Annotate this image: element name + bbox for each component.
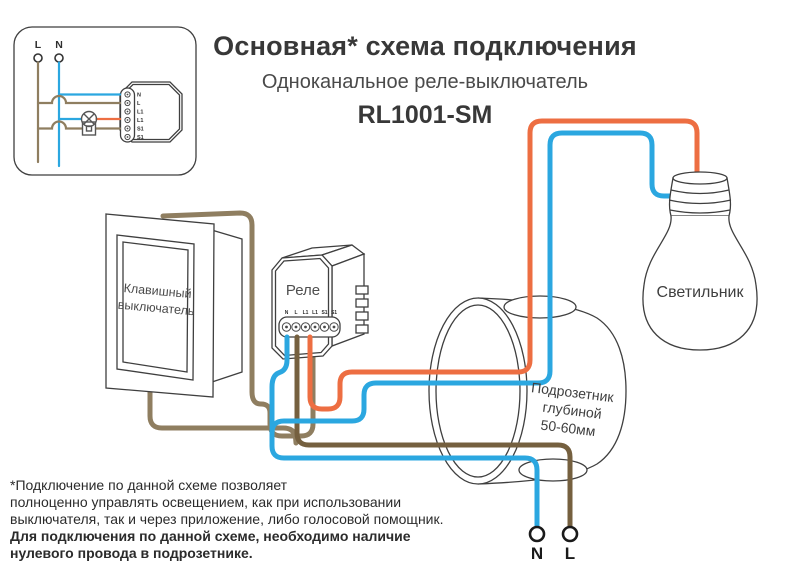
footnote-line-5: нулевого провода в подрозетнике. [10,545,444,562]
backbox-top-grommet [504,296,576,318]
mains-n-terminal [530,527,544,541]
mains-l-label: L [565,544,575,563]
mains-terminals: N L [530,527,577,563]
mains-l-terminal [563,527,577,541]
inset-term-3: L1 [137,118,143,124]
relay-fin-1 [356,286,368,294]
switch-figure: Клавишный выключатель [106,214,242,397]
relay-term-0: N [285,310,289,316]
inset-schematic: L N [14,27,196,175]
relay-front-face [272,255,332,359]
relay-fin-3 [356,312,368,320]
footnote: *Подключение по данной схеме позволяет п… [10,477,444,562]
inset-term-2: L1 [137,110,143,116]
inset-term-0: N [137,93,141,99]
inset-n-terminal [55,54,63,62]
relay-term-2: L1 [303,310,309,316]
relay-term-4: S1 [321,310,327,316]
mains-n-label: N [531,544,543,563]
relay-fin-4 [356,325,368,333]
relay-term-3: L1 [312,310,318,316]
bulb-figure: Светильник [643,172,757,350]
wiring-diagram-page: Основная* схема подключения Одноканально… [0,0,800,563]
backbox-bottom-grommet [519,459,587,481]
bulb-cap-top [673,172,727,184]
inset-n-label: N [55,39,63,51]
footnote-line-3: выключателя, так и через приложение, либ… [10,511,444,528]
inset-l-label: L [35,39,42,51]
relay-term-5: S1 [331,310,337,316]
relay-fin-2 [356,299,368,307]
inset-term-5: S1 [137,135,144,141]
relay-label: Реле [286,282,320,299]
relay-term-1: L [294,310,297,316]
footnote-line-1: *Подключение по данной схеме позволяет [10,477,444,494]
inset-term-4: S1 [137,127,144,133]
inset-l-terminal [34,54,42,62]
footnote-line-4: Для подключения по данной схеме, необход… [10,528,444,545]
bulb-globe [643,216,757,350]
footnote-line-2: полноценно управлять освещением, как при… [10,494,444,511]
bulb-label: Светильник [657,284,745,301]
